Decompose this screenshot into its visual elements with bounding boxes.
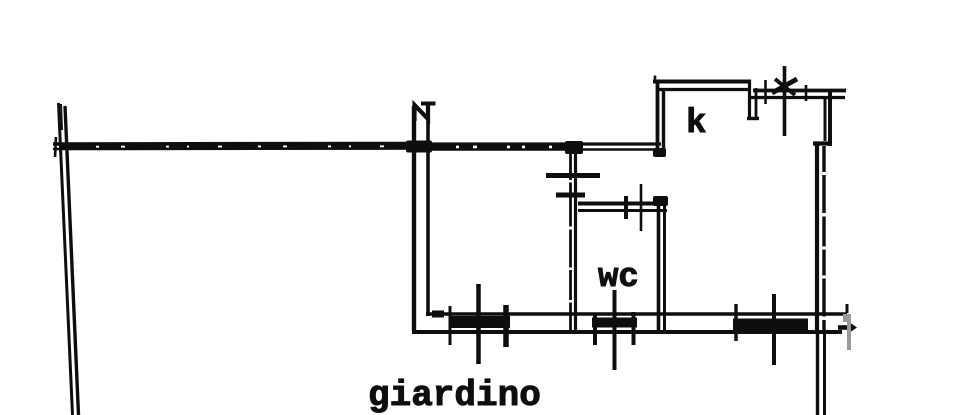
svg-text:wc: wc — [598, 259, 639, 297]
svg-text:k: k — [686, 105, 706, 143]
svg-text:giardino: giardino — [368, 375, 541, 415]
